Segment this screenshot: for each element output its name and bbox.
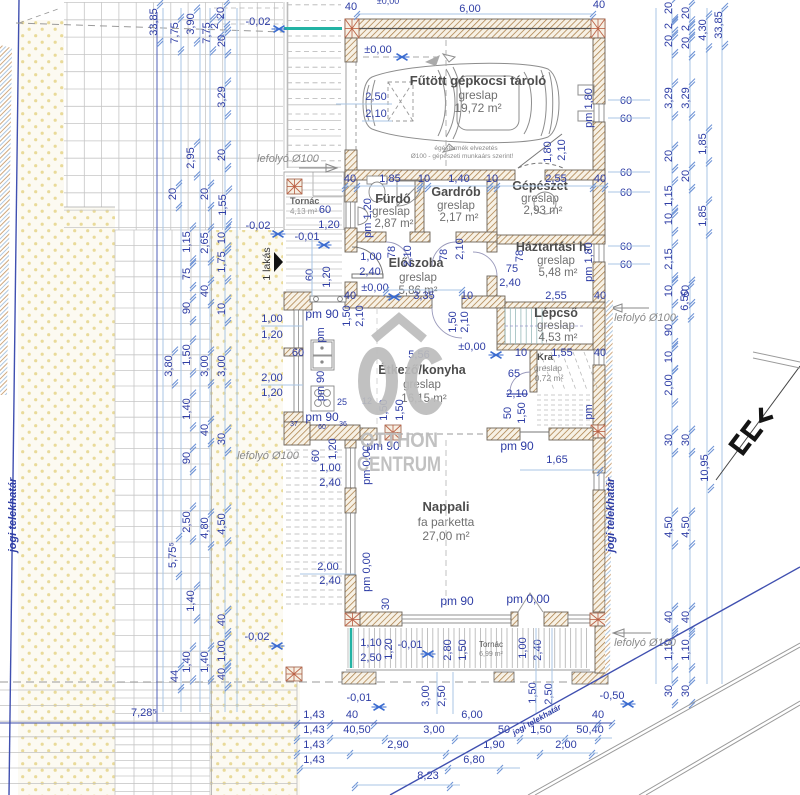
svg-text:40: 40: [680, 611, 692, 623]
svg-text:30: 30: [680, 434, 692, 446]
svg-text:2,00: 2,00: [555, 739, 576, 751]
svg-text:6,00: 6,00: [461, 709, 482, 721]
svg-text:pm 90: pm 90: [315, 371, 327, 402]
svg-text:2,40: 2,40: [532, 639, 544, 660]
svg-text:3,29: 3,29: [216, 86, 228, 107]
svg-text:3,00: 3,00: [420, 685, 432, 706]
svg-text:1,40: 1,40: [181, 398, 193, 419]
svg-text:pm: pm: [315, 327, 327, 342]
svg-text:2,55: 2,55: [545, 290, 566, 302]
svg-text:60: 60: [620, 95, 632, 107]
svg-text:2,90: 2,90: [387, 739, 408, 751]
svg-text:20: 20: [215, 7, 227, 19]
svg-text:Fürdő: Fürdő: [375, 192, 411, 206]
svg-text:20: 20: [680, 7, 692, 19]
svg-text:2,50: 2,50: [365, 91, 386, 103]
svg-text:CENTRUM: CENTRUM: [357, 453, 441, 476]
svg-text:1,10: 1,10: [680, 639, 692, 660]
svg-text:greslap: greslap: [458, 88, 498, 102]
svg-text:5,48 m²: 5,48 m²: [539, 267, 578, 279]
svg-text:2,40: 2,40: [359, 266, 380, 278]
svg-text:40: 40: [593, 0, 605, 11]
svg-text:3,29: 3,29: [663, 87, 675, 108]
svg-text:40: 40: [216, 668, 228, 680]
svg-text:40: 40: [346, 709, 358, 721]
svg-text:1,00: 1,00: [517, 637, 529, 658]
svg-text:10: 10: [663, 351, 675, 363]
svg-text:1,40: 1,40: [448, 173, 469, 185]
svg-text:5,75⁵: 5,75⁵: [167, 542, 179, 568]
svg-text:1,50: 1,50: [527, 682, 539, 703]
svg-text:2,40: 2,40: [319, 575, 340, 587]
svg-text:50: 50: [502, 407, 514, 419]
svg-text:4,30: 4,30: [697, 19, 709, 40]
svg-text:40: 40: [216, 614, 228, 626]
svg-text:Lépcső: Lépcső: [534, 306, 578, 320]
svg-text:30: 30: [380, 598, 392, 610]
svg-text:2,10: 2,10: [365, 108, 386, 120]
svg-text:1,00: 1,00: [319, 462, 340, 474]
svg-text:4,13 m²: 4,13 m²: [290, 207, 317, 216]
svg-text:78: 78: [438, 249, 450, 261]
svg-text:1,20: 1,20: [261, 387, 282, 399]
svg-text:40,50: 40,50: [343, 724, 371, 736]
svg-text:greslap: greslap: [537, 320, 575, 332]
svg-text:pm 1,80: pm 1,80: [583, 242, 595, 282]
svg-text:25: 25: [337, 397, 347, 407]
svg-text:2,50: 2,50: [436, 685, 448, 706]
svg-text:-0,02: -0,02: [245, 220, 270, 232]
svg-text:1,20: 1,20: [383, 638, 395, 659]
svg-text:20: 20: [680, 170, 692, 182]
svg-text:60: 60: [620, 187, 632, 199]
svg-text:40: 40: [344, 290, 356, 302]
svg-text:1,00: 1,00: [360, 251, 381, 263]
svg-text:Tornác: Tornác: [479, 640, 503, 649]
svg-text:1,00: 1,00: [261, 313, 282, 325]
svg-text:60: 60: [310, 450, 322, 462]
svg-text:10: 10: [216, 303, 228, 315]
svg-text:2,65: 2,65: [199, 232, 211, 253]
svg-text:2,95: 2,95: [185, 147, 197, 168]
svg-text:90: 90: [181, 302, 193, 314]
svg-text:jogi telekhatár: jogi telekhatár: [7, 477, 19, 554]
svg-text:1,50: 1,50: [181, 344, 193, 365]
svg-text:-0,01: -0,01: [346, 692, 371, 704]
svg-text:10,95: 10,95: [699, 454, 711, 482]
svg-text:jogi telekhatár: jogi telekhatár: [605, 477, 617, 554]
svg-text:90: 90: [663, 324, 675, 336]
svg-text:75: 75: [506, 263, 518, 275]
svg-text:3,80: 3,80: [163, 355, 175, 376]
svg-text:40: 40: [592, 709, 604, 721]
svg-text:6,99 m²: 6,99 m²: [479, 651, 503, 658]
svg-text:60: 60: [304, 269, 316, 281]
svg-text:-0,50: -0,50: [599, 690, 624, 702]
svg-text:égéstermék elvezetés: égéstermék elvezetés: [434, 145, 498, 152]
svg-text:2,10: 2,10: [459, 311, 471, 332]
svg-text:60: 60: [319, 204, 331, 216]
svg-text:44: 44: [169, 670, 181, 682]
svg-text:1,20: 1,20: [318, 219, 339, 231]
svg-text:1,43: 1,43: [303, 739, 324, 751]
svg-text:3,00: 3,00: [423, 724, 444, 736]
svg-text:pm 0,00: pm 0,00: [506, 592, 550, 606]
svg-text:10: 10: [486, 173, 498, 185]
svg-text:-0,02: -0,02: [245, 16, 270, 28]
svg-text:10: 10: [216, 232, 228, 244]
svg-text:2,15: 2,15: [663, 248, 675, 269]
svg-text:2,80: 2,80: [442, 639, 454, 660]
svg-text:lefolyó Ø100: lefolyó Ø100: [237, 450, 300, 462]
svg-text:1,80: 1,80: [542, 141, 554, 162]
svg-text:1,40: 1,40: [199, 651, 211, 672]
svg-text:4,80: 4,80: [199, 517, 211, 538]
svg-text:2,55: 2,55: [545, 173, 566, 185]
svg-text:3,90: 3,90: [185, 13, 197, 34]
svg-text:1,75: 1,75: [216, 251, 228, 272]
svg-text:Gardrób: Gardrób: [431, 185, 481, 199]
svg-text:1,43: 1,43: [303, 754, 324, 766]
svg-text:2,40: 2,40: [319, 477, 340, 489]
svg-text:2,00: 2,00: [261, 372, 282, 384]
svg-text:pm 90: pm 90: [305, 307, 339, 321]
svg-text:1,10: 1,10: [360, 637, 381, 649]
svg-text:33,85: 33,85: [148, 8, 160, 36]
svg-text:2,00: 2,00: [317, 561, 338, 573]
svg-text:19,72 m²: 19,72 m²: [454, 101, 501, 115]
svg-text:4,50: 4,50: [216, 513, 228, 534]
svg-text:0,72 m²: 0,72 m²: [535, 373, 564, 383]
svg-text:pm 0,00: pm 0,00: [361, 552, 373, 592]
svg-text:60: 60: [620, 167, 632, 179]
svg-text:greslap: greslap: [521, 193, 559, 205]
svg-text:1,43: 1,43: [303, 724, 324, 736]
svg-text:1,55: 1,55: [217, 194, 229, 215]
svg-text:2: 2: [209, 23, 221, 29]
svg-text:30: 30: [216, 433, 228, 445]
svg-text:20: 20: [216, 35, 228, 47]
svg-text:60: 60: [620, 259, 632, 271]
svg-text:40: 40: [199, 285, 211, 297]
svg-text:3,29: 3,29: [680, 87, 692, 108]
svg-text:1,15: 1,15: [181, 231, 193, 252]
svg-text:2,17 m²: 2,17 m²: [440, 212, 479, 224]
svg-text:50,40: 50,40: [576, 724, 604, 736]
svg-text:Háztartási h.: Háztartási h.: [516, 240, 590, 254]
svg-text:2,10: 2,10: [506, 388, 527, 400]
svg-text:40: 40: [663, 611, 675, 623]
svg-text:1,15: 1,15: [663, 185, 675, 206]
svg-text:40: 40: [594, 347, 606, 359]
svg-text:10: 10: [418, 173, 430, 185]
svg-text:6,50: 6,50: [679, 289, 691, 310]
svg-text:±0,00: ±0,00: [361, 282, 388, 294]
svg-text:-0,01: -0,01: [397, 639, 422, 651]
svg-text:1,40: 1,40: [181, 651, 193, 672]
svg-text:20: 20: [216, 149, 228, 161]
svg-text:pm 1,20: pm 1,20: [362, 198, 374, 238]
svg-text:20: 20: [199, 188, 211, 200]
svg-text:1,40: 1,40: [185, 590, 197, 611]
svg-text:2,87 m²: 2,87 m²: [375, 218, 414, 230]
svg-text:-0,02: -0,02: [244, 631, 269, 643]
svg-text:7,28⁵: 7,28⁵: [131, 707, 157, 719]
svg-text:75: 75: [181, 268, 193, 280]
svg-text:20: 20: [167, 188, 179, 200]
svg-text:2,10: 2,10: [354, 305, 366, 326]
svg-text:Tornác: Tornác: [290, 196, 319, 206]
svg-text:40: 40: [199, 424, 211, 436]
svg-text:greslap: greslap: [534, 363, 562, 373]
svg-text:1,20: 1,20: [327, 438, 339, 459]
svg-text:60: 60: [620, 241, 632, 253]
svg-text:OTTHON: OTTHON: [360, 429, 438, 452]
svg-text:2,50: 2,50: [181, 511, 193, 532]
svg-text:36: 36: [339, 421, 347, 428]
svg-text:Fűtött gépkocsi tároló: Fűtött gépkocsi tároló: [410, 73, 547, 88]
svg-text:8,23: 8,23: [417, 770, 438, 782]
svg-text:1 lakás: 1 lakás: [261, 247, 273, 280]
svg-text:greslap: greslap: [399, 272, 437, 284]
svg-text:1,85: 1,85: [697, 133, 709, 154]
svg-text:1,50: 1,50: [341, 305, 353, 326]
svg-text:pm 1,80: pm 1,80: [583, 88, 595, 128]
svg-text:greslap: greslap: [537, 255, 575, 267]
svg-text:20: 20: [680, 37, 692, 49]
svg-text:78: 78: [386, 246, 398, 258]
svg-text:2,10: 2,10: [402, 245, 414, 266]
svg-text:lefolyó Ø100: lefolyó Ø100: [257, 153, 320, 165]
svg-text:3,00: 3,00: [216, 355, 228, 376]
svg-text:±0,00: ±0,00: [458, 341, 485, 353]
svg-text:2,00: 2,00: [663, 374, 675, 395]
svg-text:1,55: 1,55: [551, 347, 572, 359]
svg-text:10: 10: [663, 213, 675, 225]
svg-text:2,10: 2,10: [454, 238, 466, 259]
svg-text:2,93 m²: 2,93 m²: [524, 205, 563, 217]
svg-text:60: 60: [318, 424, 326, 431]
svg-text:1,50: 1,50: [447, 311, 459, 332]
svg-text:60: 60: [620, 113, 632, 125]
svg-text:greslap: greslap: [372, 206, 410, 218]
svg-text:greslap: greslap: [437, 200, 475, 212]
svg-text:60: 60: [292, 347, 304, 359]
svg-text:65: 65: [508, 368, 520, 380]
svg-text:1,65: 1,65: [546, 454, 567, 466]
svg-text:2,50: 2,50: [360, 652, 381, 664]
svg-text:3,35: 3,35: [413, 290, 434, 302]
svg-text:30: 30: [663, 685, 675, 697]
svg-text:1,85: 1,85: [697, 205, 709, 226]
svg-text:7,75: 7,75: [169, 22, 181, 43]
svg-text:2,50: 2,50: [543, 683, 555, 704]
svg-text:±0,00: ±0,00: [364, 44, 391, 56]
svg-text:20: 20: [663, 35, 675, 47]
svg-text:-0,01: -0,01: [294, 231, 319, 243]
svg-text:pm 90: pm 90: [305, 410, 339, 424]
svg-text:4,50: 4,50: [663, 516, 675, 537]
svg-text:pm 90: pm 90: [500, 439, 534, 453]
svg-text:33,85: 33,85: [713, 11, 725, 39]
svg-text:10: 10: [663, 285, 675, 297]
svg-text:20: 20: [663, 150, 675, 162]
svg-text:1,85: 1,85: [379, 173, 400, 185]
svg-text:2,40: 2,40: [499, 277, 520, 289]
svg-text:1,43: 1,43: [303, 709, 324, 721]
svg-text:Ø100 - gépészeti munkaárs szer: Ø100 - gépészeti munkaárs szerint!: [411, 153, 514, 160]
svg-text:40: 40: [344, 173, 356, 185]
svg-text:40: 40: [594, 290, 606, 302]
svg-text:90: 90: [181, 452, 193, 464]
svg-text:1,50: 1,50: [394, 399, 406, 420]
svg-text:2,10: 2,10: [556, 139, 568, 160]
svg-text:1,20: 1,20: [261, 329, 282, 341]
svg-text:6,00: 6,00: [459, 3, 480, 15]
svg-text:78: 78: [514, 250, 526, 262]
svg-text:4,50: 4,50: [680, 516, 692, 537]
svg-text:lefolyó Ø100: lefolyó Ø100: [614, 637, 677, 649]
svg-text:4,53 m²: 4,53 m²: [539, 332, 578, 344]
svg-text:30: 30: [663, 434, 675, 446]
svg-text:lefolyó Ø100: lefolyó Ø100: [614, 312, 677, 324]
svg-text:37: 37: [290, 421, 298, 428]
svg-text:6,80: 6,80: [463, 754, 484, 766]
svg-text:2: 2: [680, 25, 692, 31]
svg-text:2: 2: [663, 23, 675, 29]
svg-text:3,00: 3,00: [199, 355, 211, 376]
svg-text:1,50: 1,50: [516, 402, 528, 423]
svg-text:20: 20: [663, 2, 675, 14]
svg-text:1,00: 1,00: [216, 640, 228, 661]
svg-text:40: 40: [345, 1, 357, 13]
svg-text:1,50: 1,50: [457, 639, 469, 660]
svg-text:10: 10: [515, 347, 527, 359]
svg-text:30: 30: [680, 685, 692, 697]
svg-text:1,20: 1,20: [321, 266, 333, 287]
svg-text:pm: pm: [583, 404, 595, 419]
svg-text:pm 90: pm 90: [440, 594, 474, 608]
svg-text:±0,00: ±0,00: [377, 0, 399, 6]
